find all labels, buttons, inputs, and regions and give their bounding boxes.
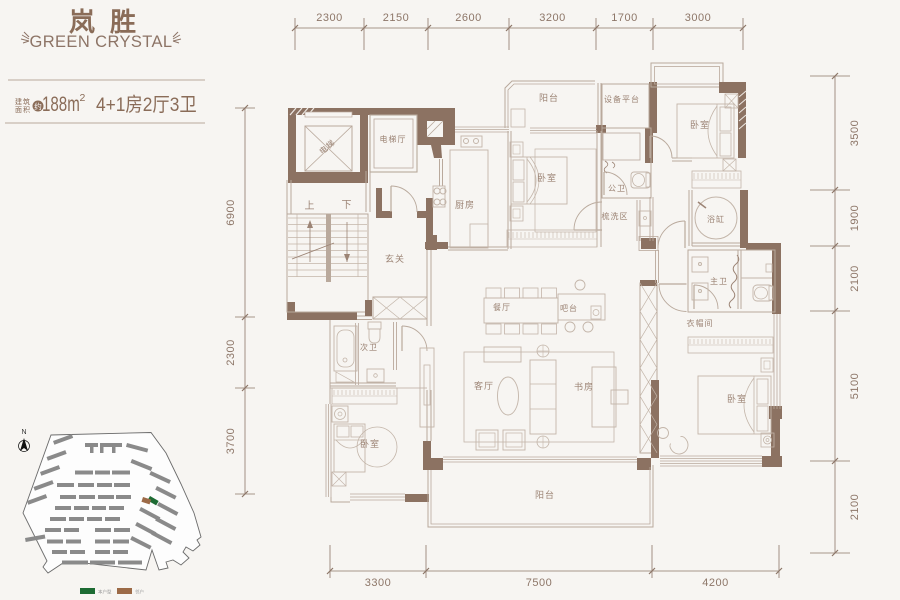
svg-text:书房: 书房 (574, 381, 594, 392)
svg-text:4200: 4200 (702, 577, 728, 589)
svg-text:主卫: 主卫 (710, 276, 728, 286)
svg-text:邻户: 邻户 (135, 589, 144, 596)
svg-text:本户型: 本户型 (98, 589, 112, 596)
svg-text:2100: 2100 (849, 494, 861, 520)
svg-text:卧室: 卧室 (360, 438, 380, 449)
svg-text:下: 下 (342, 200, 353, 211)
svg-text:建筑: 建筑 (15, 97, 31, 106)
svg-text:玄关: 玄关 (385, 253, 405, 264)
svg-text:2300: 2300 (316, 12, 342, 24)
svg-text:梳洗区: 梳洗区 (602, 211, 629, 221)
svg-text:4+1房2厅3卫: 4+1房2厅3卫 (96, 93, 197, 115)
svg-text:N: N (21, 429, 26, 436)
svg-text:6900: 6900 (225, 199, 237, 225)
svg-text:上: 上 (305, 200, 316, 212)
svg-text:188m: 188m (42, 91, 80, 115)
svg-text:GREEN CRYSTAL: GREEN CRYSTAL (29, 33, 172, 51)
svg-text:2600: 2600 (455, 12, 481, 24)
svg-text:面积: 面积 (15, 105, 31, 114)
svg-text:餐厅: 餐厅 (493, 303, 511, 312)
svg-text:3300: 3300 (365, 577, 391, 589)
svg-text:2300: 2300 (225, 339, 237, 365)
svg-text:1700: 1700 (611, 12, 637, 24)
svg-text:约: 约 (34, 101, 42, 111)
svg-text:3200: 3200 (539, 12, 565, 24)
svg-text:卧室: 卧室 (537, 172, 557, 183)
svg-text:5100: 5100 (849, 373, 861, 399)
svg-text:次卫: 次卫 (360, 342, 378, 352)
svg-text:阳台: 阳台 (535, 489, 555, 500)
svg-text:阳台: 阳台 (539, 92, 559, 103)
svg-text:3700: 3700 (225, 428, 237, 454)
svg-text:2100: 2100 (849, 265, 861, 291)
svg-text:3500: 3500 (849, 120, 861, 146)
svg-text:厨房: 厨房 (455, 199, 475, 210)
svg-text:7500: 7500 (526, 577, 552, 589)
svg-text:电梯厅: 电梯厅 (380, 134, 407, 144)
svg-text:浴缸: 浴缸 (707, 214, 725, 224)
svg-text:衣帽间: 衣帽间 (687, 318, 714, 328)
svg-text:1900: 1900 (849, 205, 861, 231)
svg-text:设备平台: 设备平台 (604, 94, 640, 104)
svg-text:卧室: 卧室 (727, 393, 747, 404)
svg-text:吧台: 吧台 (560, 303, 578, 313)
svg-text:2150: 2150 (383, 12, 409, 24)
svg-text:卧室: 卧室 (690, 119, 710, 130)
svg-text:公卫: 公卫 (608, 184, 626, 193)
svg-text:客厅: 客厅 (474, 380, 494, 391)
svg-text:2: 2 (80, 92, 86, 104)
svg-text:3000: 3000 (685, 12, 711, 24)
